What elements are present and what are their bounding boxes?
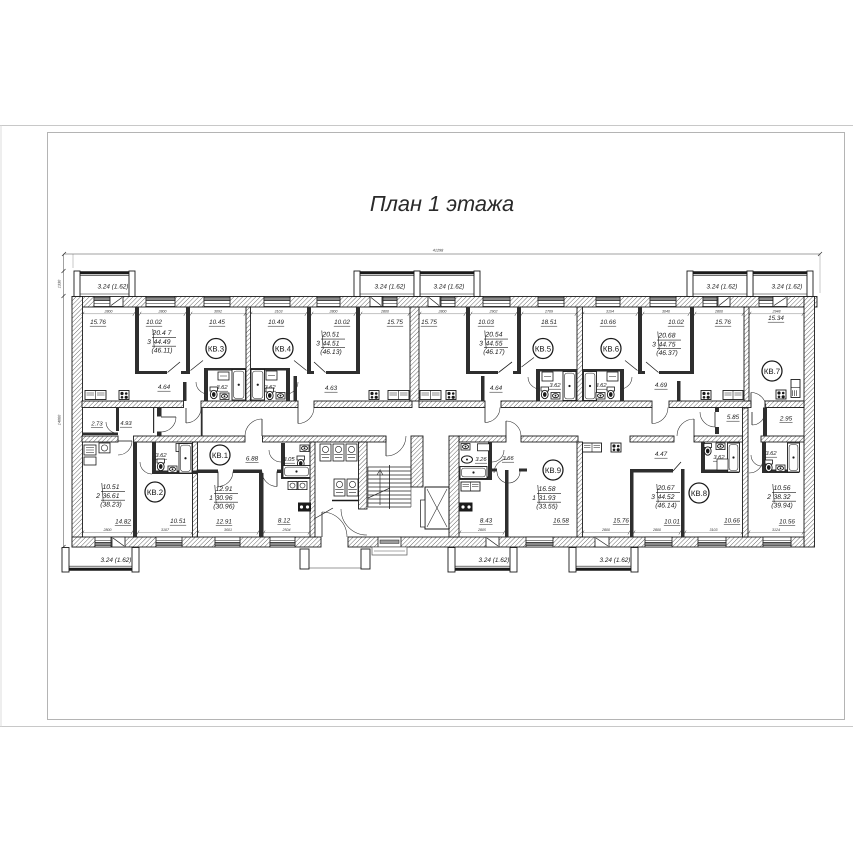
svg-text:2800: 2800	[380, 309, 389, 313]
svg-text:1: 1	[532, 495, 536, 502]
svg-text:10.03: 10.03	[478, 319, 494, 326]
svg-text:(39.94): (39.94)	[771, 503, 793, 510]
svg-text:3.24 (1.62): 3.24 (1.62)	[98, 284, 129, 291]
svg-text:10.56: 10.56	[773, 485, 790, 492]
svg-text:2504: 2504	[282, 528, 291, 532]
svg-text:(46.11): (46.11)	[151, 348, 172, 355]
svg-text:12.91: 12.91	[216, 519, 232, 526]
svg-text:15.76: 15.76	[715, 319, 731, 326]
svg-text:44.49: 44.49	[153, 339, 170, 346]
svg-text:3.24 (1.62): 3.24 (1.62)	[375, 284, 406, 291]
svg-text:2902: 2902	[489, 309, 498, 313]
svg-text:План 1 этажа: План 1 этажа	[370, 191, 514, 216]
svg-text:15.75: 15.75	[421, 319, 437, 326]
svg-text:2948: 2948	[772, 309, 781, 313]
svg-text:15.76: 15.76	[613, 518, 629, 525]
svg-text:4.64: 4.64	[158, 384, 171, 391]
svg-text:20.54: 20.54	[484, 332, 502, 339]
svg-text:3124: 3124	[772, 528, 780, 532]
svg-text:44.51: 44.51	[322, 341, 339, 348]
svg-text:3.24 (1.62): 3.24 (1.62)	[772, 284, 803, 291]
svg-text:20.68: 20.68	[657, 333, 675, 340]
svg-text:4.69: 4.69	[655, 382, 668, 389]
svg-text:10.51: 10.51	[102, 484, 119, 491]
svg-text:2800: 2800	[103, 528, 112, 532]
svg-text:3092: 3092	[214, 309, 222, 313]
svg-text:44.75: 44.75	[658, 342, 675, 349]
svg-text:2800: 2800	[601, 528, 610, 532]
svg-text:КВ.9: КВ.9	[545, 466, 561, 475]
svg-text:КВ.6: КВ.6	[603, 344, 619, 353]
svg-text:3103: 3103	[710, 528, 718, 532]
svg-text:КВ.4: КВ.4	[275, 344, 292, 353]
svg-text:КВ.7: КВ.7	[764, 367, 780, 376]
svg-text:5.85: 5.85	[727, 414, 740, 421]
svg-text:3.62: 3.62	[765, 450, 777, 457]
svg-text:2.95: 2.95	[779, 416, 793, 423]
svg-text:4.63: 4.63	[325, 385, 338, 392]
svg-text:(30.96): (30.96)	[213, 504, 235, 511]
svg-text:15.75: 15.75	[387, 319, 403, 326]
svg-text:20.67: 20.67	[656, 485, 674, 492]
svg-text:10.56: 10.56	[779, 519, 795, 526]
svg-text:(33.55): (33.55)	[536, 504, 558, 511]
svg-text:3: 3	[652, 342, 656, 349]
svg-text:14060: 14060	[58, 414, 62, 425]
svg-text:3601: 3601	[224, 528, 232, 532]
svg-text:44.55: 44.55	[485, 341, 502, 348]
svg-text:КВ.8: КВ.8	[691, 489, 707, 498]
svg-text:3.24 (1.62): 3.24 (1.62)	[707, 284, 738, 291]
svg-text:(46.37): (46.37)	[656, 350, 678, 357]
svg-text:1330: 1330	[58, 279, 62, 288]
svg-text:3.24 (1.62): 3.24 (1.62)	[434, 284, 465, 291]
svg-text:15.76: 15.76	[90, 319, 106, 326]
svg-text:18.51: 18.51	[541, 319, 557, 326]
svg-text:3040: 3040	[662, 309, 670, 313]
svg-text:3.26: 3.26	[475, 456, 487, 463]
svg-text:2800: 2800	[158, 309, 167, 313]
svg-text:10.01: 10.01	[664, 519, 680, 526]
svg-text:КВ.5: КВ.5	[535, 344, 552, 353]
svg-text:2.73: 2.73	[90, 421, 103, 428]
svg-text:3103: 3103	[275, 309, 283, 313]
svg-text:10.51: 10.51	[170, 518, 186, 525]
svg-text:3.05: 3.05	[283, 456, 295, 463]
svg-text:12.91: 12.91	[215, 486, 232, 493]
svg-text:41298: 41298	[433, 249, 444, 253]
svg-text:3: 3	[479, 341, 483, 348]
svg-text:2709: 2709	[544, 309, 553, 313]
svg-text:1: 1	[209, 495, 213, 502]
svg-text:(46.13): (46.13)	[320, 349, 342, 356]
svg-text:3.62: 3.62	[216, 384, 228, 391]
svg-text:КВ.2: КВ.2	[147, 488, 163, 497]
svg-text:3.24 (1.62): 3.24 (1.62)	[101, 557, 132, 564]
svg-text:2800: 2800	[652, 528, 661, 532]
svg-text:КВ.1: КВ.1	[212, 451, 228, 460]
svg-text:3.62: 3.62	[549, 382, 561, 389]
svg-text:16.58: 16.58	[538, 486, 555, 493]
svg-text:2: 2	[95, 493, 100, 500]
svg-text:38.32: 38.32	[773, 494, 790, 501]
svg-text:(38.23): (38.23)	[100, 502, 122, 509]
svg-text:3: 3	[147, 339, 151, 346]
svg-text:44.52: 44.52	[657, 494, 674, 501]
svg-text:16.58: 16.58	[553, 518, 569, 525]
svg-text:14.82: 14.82	[115, 519, 131, 526]
svg-text:3.62: 3.62	[595, 382, 607, 389]
svg-text:4.64: 4.64	[490, 385, 503, 392]
svg-text:8.43: 8.43	[480, 518, 493, 525]
svg-text:6.88: 6.88	[246, 456, 259, 463]
svg-text:(46.14): (46.14)	[655, 503, 677, 510]
svg-text:20.4 7: 20.4 7	[152, 330, 172, 337]
svg-text:4.93: 4.93	[120, 420, 132, 427]
svg-text:20.51: 20.51	[321, 332, 339, 339]
svg-text:31.93: 31.93	[538, 495, 555, 502]
svg-text:3: 3	[316, 341, 320, 348]
svg-text:2805: 2805	[477, 528, 486, 532]
svg-text:2800: 2800	[329, 309, 338, 313]
svg-text:3107: 3107	[161, 528, 170, 532]
svg-text:2800: 2800	[438, 309, 447, 313]
svg-text:3.62: 3.62	[155, 452, 167, 459]
svg-text:3.66: 3.66	[502, 455, 514, 462]
svg-text:10.02: 10.02	[334, 319, 350, 326]
svg-text:КВ.3: КВ.3	[208, 344, 224, 353]
svg-text:10.45: 10.45	[209, 319, 225, 326]
svg-text:8.12: 8.12	[278, 518, 291, 525]
svg-text:10.02: 10.02	[146, 319, 162, 326]
svg-text:36.61: 36.61	[102, 493, 119, 500]
svg-text:3: 3	[651, 494, 655, 501]
svg-text:3.24 (1.62): 3.24 (1.62)	[600, 557, 631, 564]
svg-text:10.49: 10.49	[268, 319, 284, 326]
svg-text:2800: 2800	[714, 309, 723, 313]
svg-text:2: 2	[766, 494, 771, 501]
svg-text:15.34: 15.34	[768, 315, 784, 322]
svg-text:30.96: 30.96	[215, 495, 232, 502]
svg-text:(46.17): (46.17)	[483, 349, 505, 356]
svg-text:10.66: 10.66	[600, 319, 616, 326]
svg-text:3154: 3154	[606, 309, 614, 313]
svg-text:10.66: 10.66	[724, 518, 740, 525]
svg-text:4.47: 4.47	[655, 451, 668, 458]
svg-text:3.24 (1.62): 3.24 (1.62)	[479, 557, 510, 564]
svg-text:2800: 2800	[104, 309, 113, 313]
svg-text:10.02: 10.02	[668, 319, 684, 326]
